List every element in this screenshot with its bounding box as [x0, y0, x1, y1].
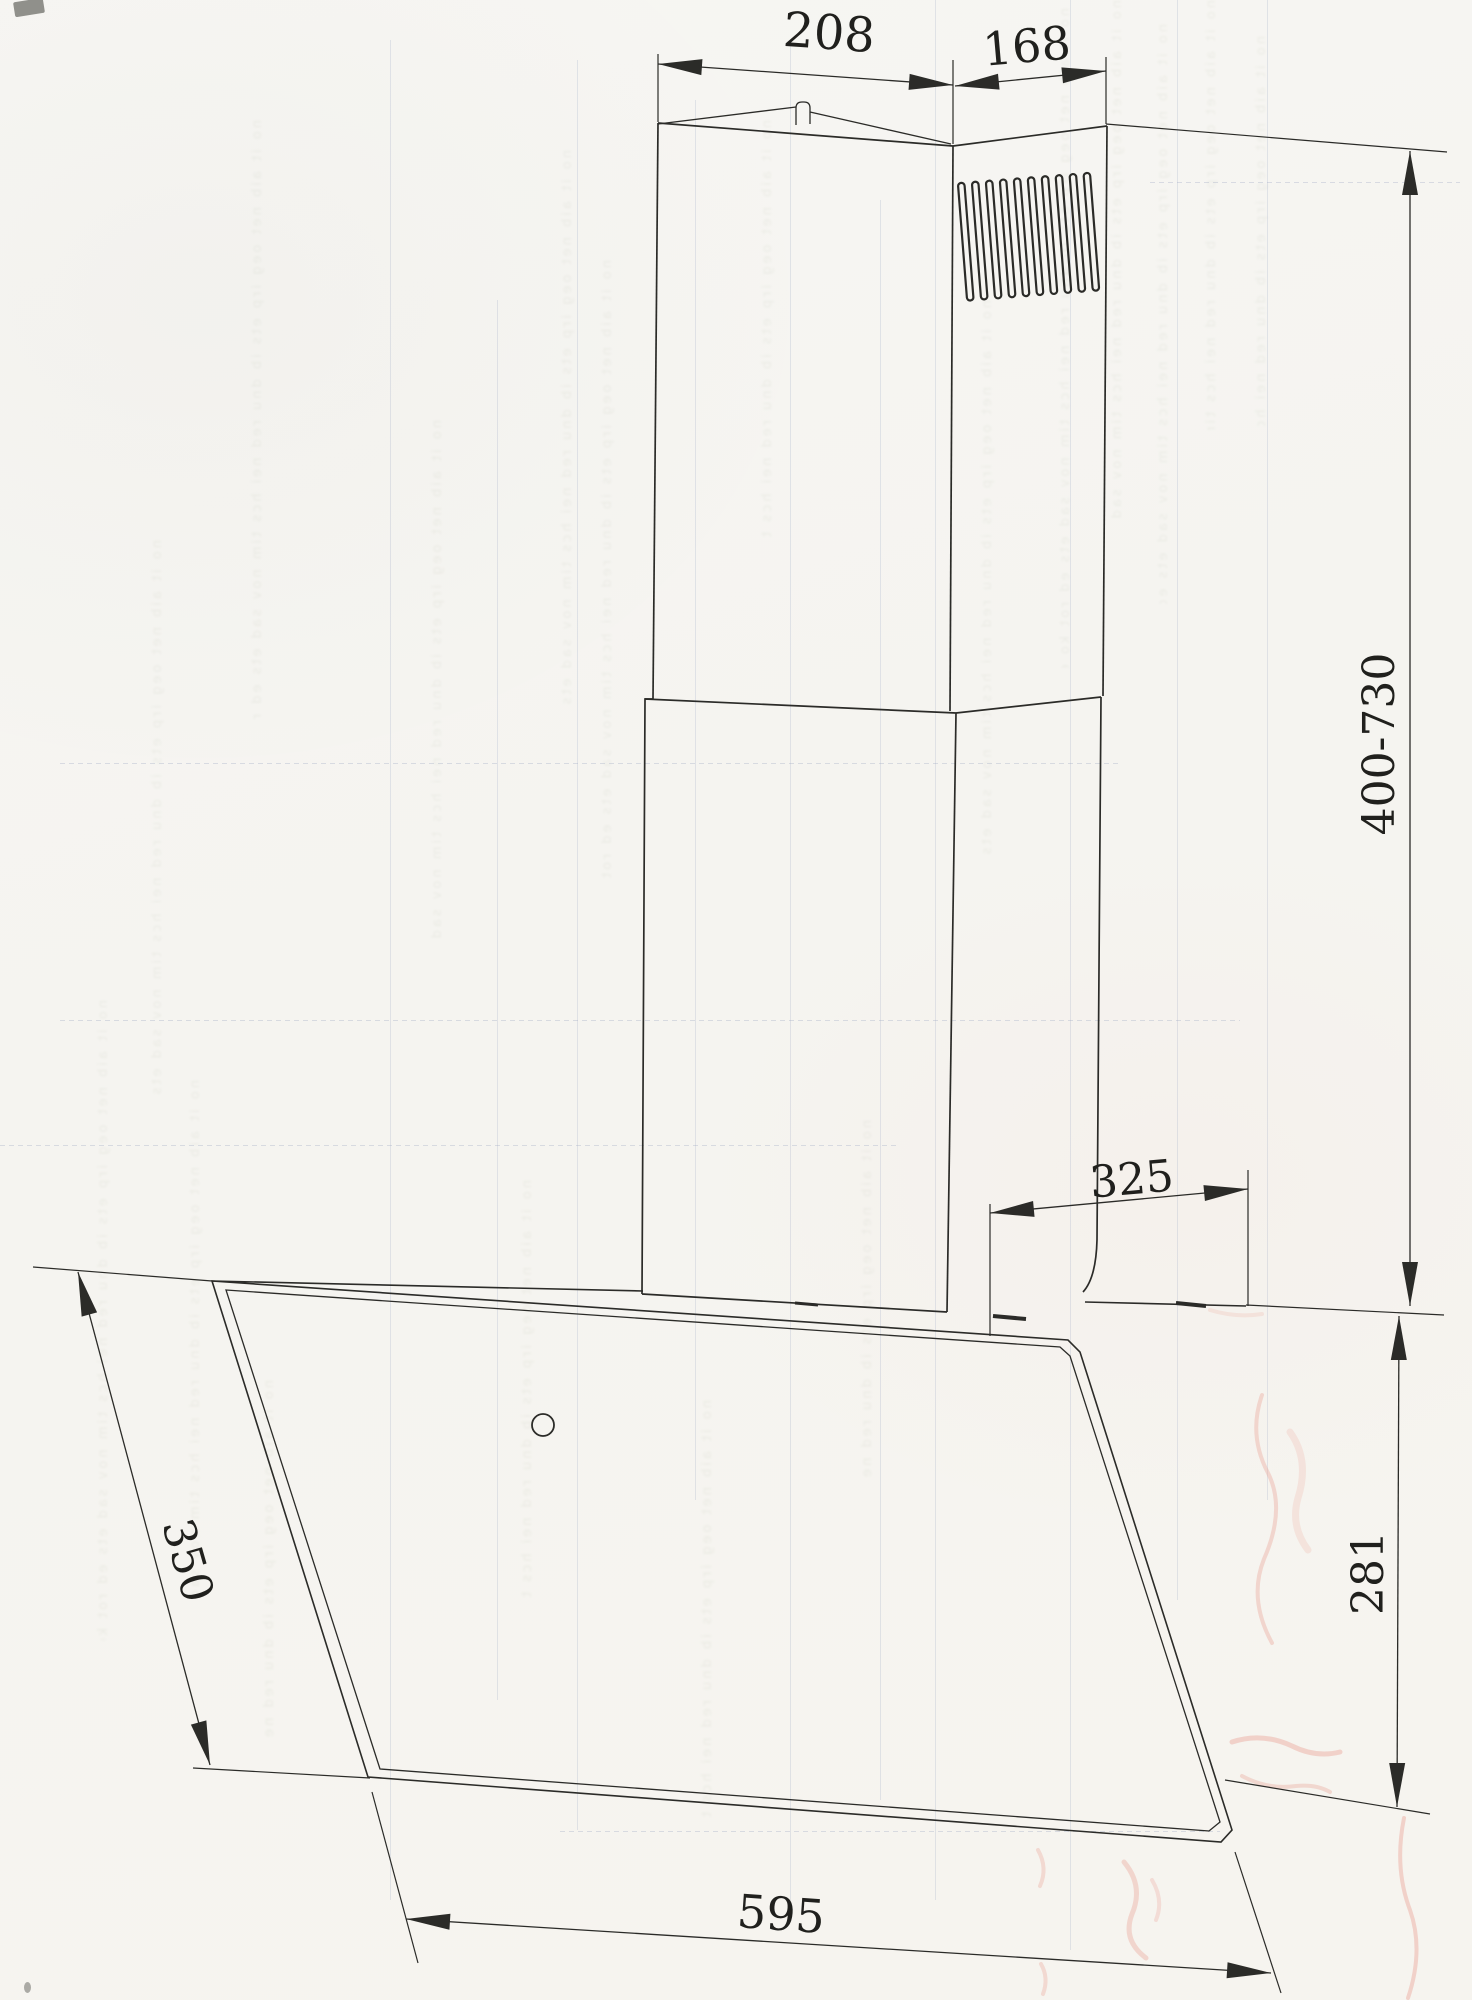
dimension-label-hood-width: 595: [735, 1884, 826, 1944]
glass-panel-inner: [226, 1290, 1220, 1831]
pink-ink-smudges: [1038, 1310, 1417, 1998]
dimension-label-chimney-depth: 325: [1088, 1150, 1176, 1208]
dimension-arrowhead: [406, 1914, 450, 1930]
dim-line-body-height: [1397, 1316, 1399, 1807]
chimney-joint-front: [645, 699, 956, 713]
dimension-arrowhead: [1389, 1763, 1405, 1807]
dimension-arrowhead: [78, 1272, 97, 1317]
dim-line-front-width: [658, 64, 953, 85]
dimension-arrowhead: [191, 1720, 210, 1765]
ext-350-bottom: [193, 1768, 370, 1778]
bracket-tab: [993, 1316, 1026, 1319]
hood-body: [212, 1281, 1246, 1842]
scanned-manual-page: no it aib net oeg irp ets ib dnu red nei…: [0, 0, 1472, 2000]
chimney-lower-mid-edge: [947, 713, 956, 1312]
dimension-arrowhead: [1402, 1262, 1418, 1306]
dimension-arrowhead: [1061, 67, 1106, 83]
bracket-tab: [1176, 1303, 1206, 1306]
chimney-upper-right-edge: [1103, 126, 1107, 696]
chimney-top-tab: [796, 102, 810, 125]
chimney-joint-side: [956, 697, 1101, 713]
dimension-label-front-width: 208: [781, 2, 876, 64]
chimney-upper-left-edge: [653, 123, 658, 699]
chimney-top-back-edge: [658, 107, 796, 124]
dimension-arrowhead: [1391, 1316, 1407, 1360]
dimension-arrowhead: [1203, 1185, 1248, 1201]
dimension-label-glass-edge: 350: [151, 1513, 223, 1608]
glass-panel-outer: [212, 1281, 1232, 1842]
ext-hood-top-right: [1246, 1305, 1444, 1315]
chimney-lower-left-edge: [642, 699, 653, 1294]
dimension-arrowhead: [990, 1201, 1035, 1217]
dimension-arrowhead: [658, 59, 702, 75]
chimney: [642, 102, 1107, 1312]
dimension-label-side-width: 168: [981, 15, 1073, 76]
hood-top-back-edge-right: [1085, 1302, 1246, 1306]
glass-control-circle: [532, 1414, 554, 1436]
ext-chimney-top: [1106, 124, 1447, 152]
chimney-upper-mid-edge: [950, 146, 953, 711]
dimension-label-body-height: 281: [1343, 1531, 1394, 1615]
dimension-arrowhead: [1227, 1962, 1271, 1978]
hood-technical-drawing: 208 168 400-730 325 281 350 595: [0, 0, 1472, 2000]
chimney-upper-side-top-edge: [953, 126, 1107, 146]
ext-350-top: [33, 1267, 212, 1281]
dimension-arrowhead: [1402, 151, 1418, 195]
ext-595-left: [372, 1792, 418, 1963]
dimension-label-chimney-height: 400-730: [1354, 653, 1405, 836]
chimney-top-back-edge2: [810, 112, 951, 144]
vent-slots: [958, 173, 1099, 301]
dimension-lines: [78, 59, 1418, 1978]
extension-lines: [33, 54, 1447, 1993]
chimney-bottom-edge: [642, 1294, 947, 1312]
dimension-arrowhead: [909, 74, 953, 90]
dim-line-hood-width: [406, 1919, 1271, 1973]
